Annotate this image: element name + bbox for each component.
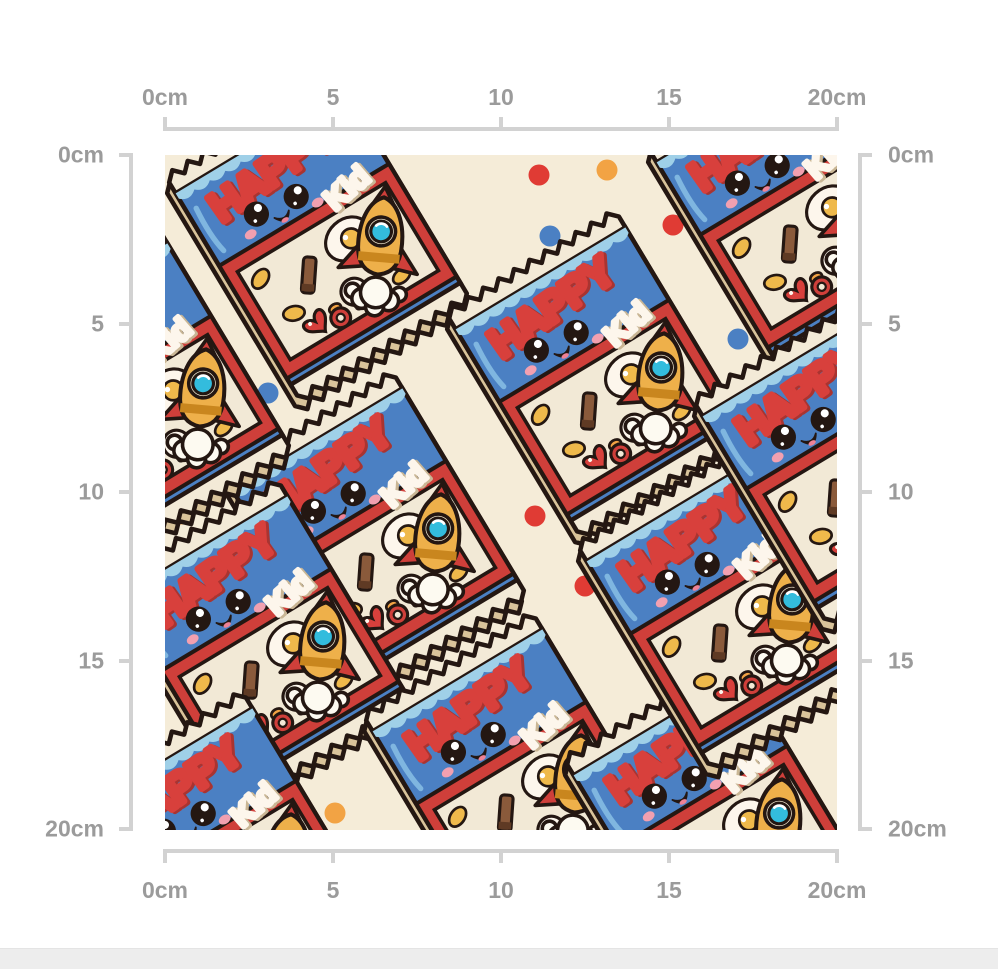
ruler-tick — [835, 849, 839, 863]
ruler-tick — [858, 659, 872, 663]
ruler-label: 0cm — [888, 144, 934, 167]
pattern-svg: HAPPY HAPPY Kid Kid — [165, 155, 837, 830]
ruler-label: 10 — [30, 481, 104, 504]
ruler-tick — [499, 849, 503, 863]
ruler-tick — [667, 849, 671, 863]
ruler-label: 0cm — [142, 879, 188, 902]
ruler-label: 20cm — [888, 818, 947, 841]
ruler-label: 0cm — [30, 144, 104, 167]
polka-dot — [597, 160, 618, 181]
pattern-swatch: HAPPY HAPPY Kid Kid — [165, 155, 837, 830]
ruler-label: 15 — [30, 650, 104, 673]
ruler-tick — [119, 827, 133, 831]
ruler-label: 20cm — [808, 86, 867, 109]
ruler-tick — [858, 322, 872, 326]
ruler-label: 10 — [488, 86, 514, 109]
ruler-tick — [331, 849, 335, 863]
polka-dot — [325, 803, 346, 824]
polka-dot — [529, 165, 550, 186]
polka-dot — [540, 226, 561, 247]
ruler-tick — [858, 153, 872, 157]
ruler-tick — [119, 322, 133, 326]
ruler-label: 0cm — [142, 86, 188, 109]
ruler-label: 20cm — [30, 818, 104, 841]
ruler-label: 10 — [888, 481, 914, 504]
ruler-label: 15 — [656, 879, 682, 902]
footer-bar — [0, 948, 998, 969]
ruler-label: 20cm — [808, 879, 867, 902]
ruler-label: 15 — [888, 650, 914, 673]
ruler-label: 15 — [656, 86, 682, 109]
ruler-tick — [119, 659, 133, 663]
polka-dot — [525, 506, 546, 527]
ruler-tick — [119, 153, 133, 157]
ruler-tick — [163, 849, 167, 863]
ruler-tick — [858, 827, 872, 831]
ruler-label: 5 — [327, 879, 340, 902]
ruler-tick — [858, 490, 872, 494]
pattern-preview-page: 0cm 5 10 15 20cm 0cm 5 10 15 20cm 0cm 5 … — [0, 0, 998, 969]
ruler-label: 5 — [30, 313, 104, 336]
ruler-label: 5 — [327, 86, 340, 109]
ruler-line — [165, 127, 839, 131]
ruler-tick — [119, 490, 133, 494]
ruler-label: 10 — [488, 879, 514, 902]
ruler-label: 5 — [888, 313, 901, 336]
polka-dot — [728, 329, 749, 350]
